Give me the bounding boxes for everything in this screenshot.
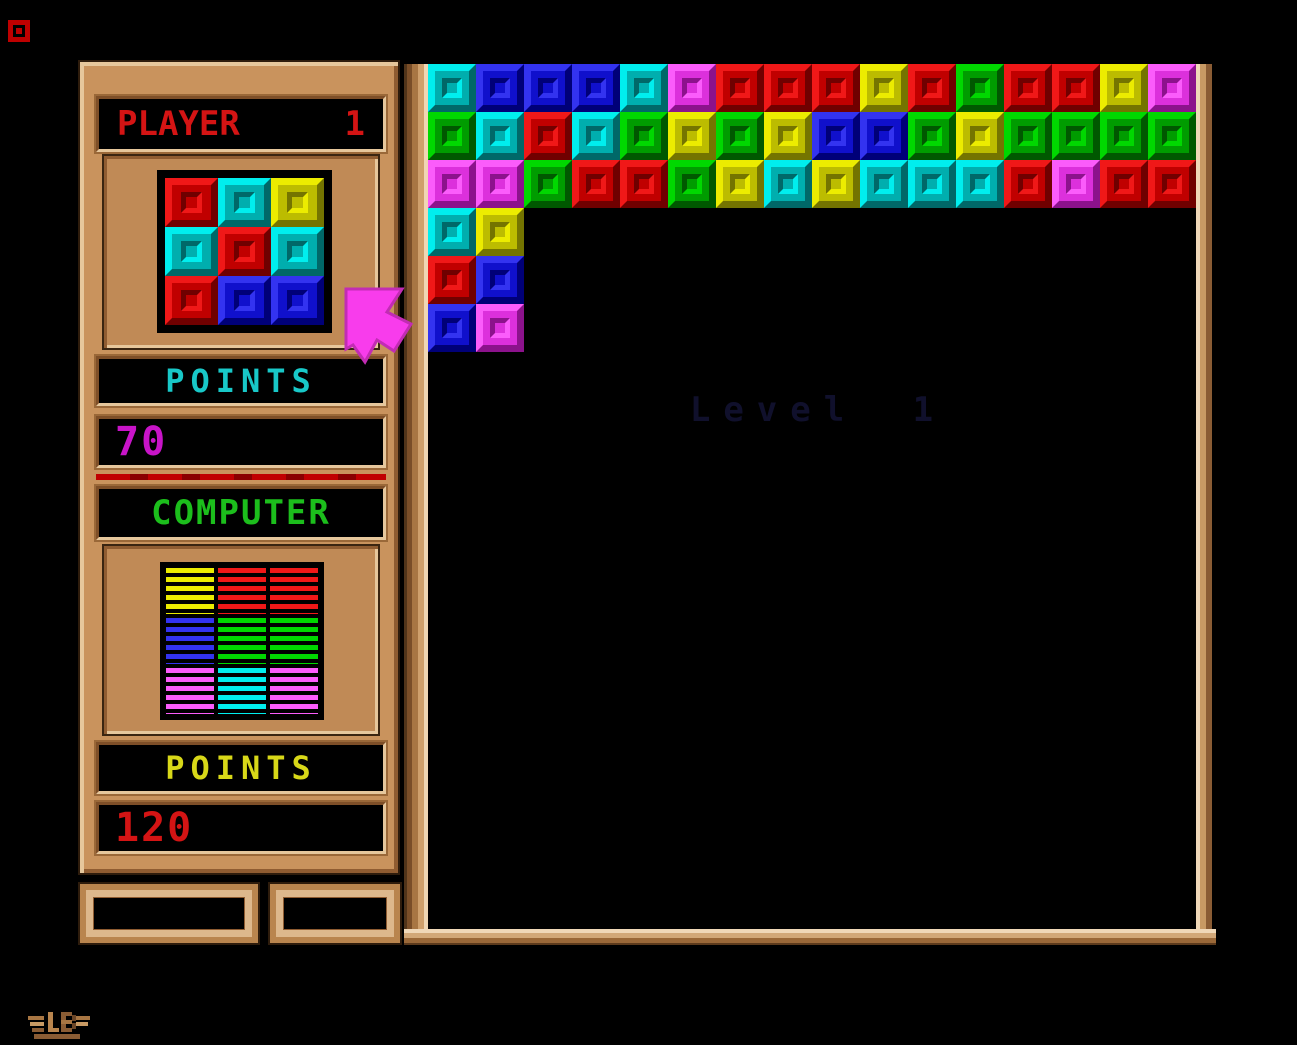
game-screen: PLAYER 1 POINTS 70 COMPUTER POINTS 120: [0, 0, 1297, 1045]
field-block-magenta[interactable]: [668, 64, 716, 112]
computer-title-box: COMPUTER: [96, 486, 386, 540]
preview-block-red: [165, 276, 218, 325]
field-block-blue[interactable]: [524, 64, 572, 112]
field-block-red[interactable]: [524, 112, 572, 160]
field-block-blue[interactable]: [476, 256, 524, 304]
computer-mini-block-red: [218, 568, 266, 614]
field-block-green[interactable]: [1148, 112, 1196, 160]
preview-block-cyan: [165, 227, 218, 276]
field-block-green[interactable]: [1100, 112, 1148, 160]
cursor-arrow-icon: [340, 283, 416, 367]
field-block-magenta[interactable]: [1148, 64, 1196, 112]
computer-mini-block-yellow: [166, 568, 214, 614]
field-block-magenta[interactable]: [428, 160, 476, 208]
field-block-cyan[interactable]: [860, 160, 908, 208]
field-block-green[interactable]: [956, 64, 1004, 112]
computer-title: COMPUTER: [151, 493, 331, 533]
player-preview-panel: [102, 154, 380, 350]
field-block-red[interactable]: [572, 160, 620, 208]
field-block-red[interactable]: [620, 160, 668, 208]
field-block-red[interactable]: [428, 256, 476, 304]
field-block-red[interactable]: [764, 64, 812, 112]
field-block-yellow[interactable]: [860, 64, 908, 112]
field-block-green[interactable]: [524, 160, 572, 208]
field-block-red[interactable]: [1148, 160, 1196, 208]
field-block-yellow[interactable]: [476, 208, 524, 256]
sidebar-panel: PLAYER 1 POINTS 70 COMPUTER POINTS 120: [78, 60, 400, 875]
player-title-box: PLAYER 1: [96, 96, 386, 152]
field-block-green[interactable]: [1004, 112, 1052, 160]
red-divider: [96, 474, 386, 480]
field-block-cyan[interactable]: [476, 112, 524, 160]
field-block-red[interactable]: [908, 64, 956, 112]
field-block-blue[interactable]: [428, 304, 476, 352]
preview-block-cyan: [218, 178, 271, 227]
preview-block-blue: [218, 276, 271, 325]
preview-block-yellow: [271, 178, 324, 227]
bottom-slot-right: [268, 882, 402, 945]
player-score-box: 70: [96, 416, 386, 468]
field-block-blue[interactable]: [812, 112, 860, 160]
field-block-cyan[interactable]: [428, 208, 476, 256]
field-block-magenta[interactable]: [476, 160, 524, 208]
field-block-green[interactable]: [668, 160, 716, 208]
bottom-slot-left-screen: [86, 890, 252, 937]
computer-mini-block-blue: [166, 618, 214, 664]
field-block-cyan[interactable]: [956, 160, 1004, 208]
player-points-label: POINTS: [165, 362, 317, 400]
computer-board-grid: [160, 562, 324, 720]
player-score-value: 70: [115, 419, 167, 465]
level-label: Level 1: [658, 390, 978, 430]
field-block-yellow[interactable]: [668, 112, 716, 160]
field-block-yellow[interactable]: [956, 112, 1004, 160]
field-block-green[interactable]: [716, 112, 764, 160]
field-block-cyan[interactable]: [572, 112, 620, 160]
computer-mini-block-green: [270, 618, 318, 664]
computer-board-panel: [102, 544, 380, 736]
field-block-red[interactable]: [1100, 160, 1148, 208]
computer-points-box: POINTS: [96, 742, 386, 794]
field-block-cyan[interactable]: [620, 64, 668, 112]
field-block-yellow[interactable]: [812, 160, 860, 208]
player-title-text: PLAYER: [117, 104, 240, 144]
computer-score-box: 120: [96, 802, 386, 854]
field-block-yellow[interactable]: [716, 160, 764, 208]
field-block-yellow[interactable]: [764, 112, 812, 160]
game-logo-icon: [28, 1008, 90, 1042]
field-block-blue[interactable]: [572, 64, 620, 112]
computer-mini-block-magenta: [166, 668, 214, 714]
preview-block-blue: [271, 276, 324, 325]
field-block-yellow[interactable]: [1100, 64, 1148, 112]
field-border-right: [1196, 64, 1212, 929]
field-block-blue[interactable]: [476, 64, 524, 112]
field-block-green[interactable]: [908, 112, 956, 160]
computer-mini-block-green: [218, 618, 266, 664]
player-title: PLAYER 1: [99, 104, 383, 144]
field-block-red[interactable]: [1052, 64, 1100, 112]
field-border-bottom: [404, 929, 1216, 945]
bottom-slot-right-screen: [276, 890, 394, 937]
player-number: 1: [345, 104, 365, 144]
computer-score-value: 120: [115, 805, 193, 851]
computer-points-label: POINTS: [165, 749, 317, 787]
preview-block-cyan: [271, 227, 324, 276]
field-block-red[interactable]: [812, 64, 860, 112]
field-border-left: [404, 64, 428, 929]
field-block-blue[interactable]: [860, 112, 908, 160]
field-block-cyan[interactable]: [908, 160, 956, 208]
field-block-green[interactable]: [1052, 112, 1100, 160]
field-block-cyan[interactable]: [764, 160, 812, 208]
field-block-red[interactable]: [1004, 160, 1052, 208]
field-block-cyan[interactable]: [428, 64, 476, 112]
preview-block-red: [218, 227, 271, 276]
field-block-green[interactable]: [620, 112, 668, 160]
preview-block-red: [165, 178, 218, 227]
player-preview-grid: [157, 170, 332, 333]
computer-mini-block-red: [270, 568, 318, 614]
field-block-green[interactable]: [428, 112, 476, 160]
field-block-red[interactable]: [716, 64, 764, 112]
field-block-magenta[interactable]: [1052, 160, 1100, 208]
computer-mini-block-cyan: [218, 668, 266, 714]
field-block-red[interactable]: [1004, 64, 1052, 112]
field-block-magenta[interactable]: [476, 304, 524, 352]
system-menu-icon[interactable]: [8, 20, 30, 42]
play-field[interactable]: Level 1: [428, 64, 1196, 929]
computer-mini-block-magenta: [270, 668, 318, 714]
bottom-slot-left: [78, 882, 260, 945]
